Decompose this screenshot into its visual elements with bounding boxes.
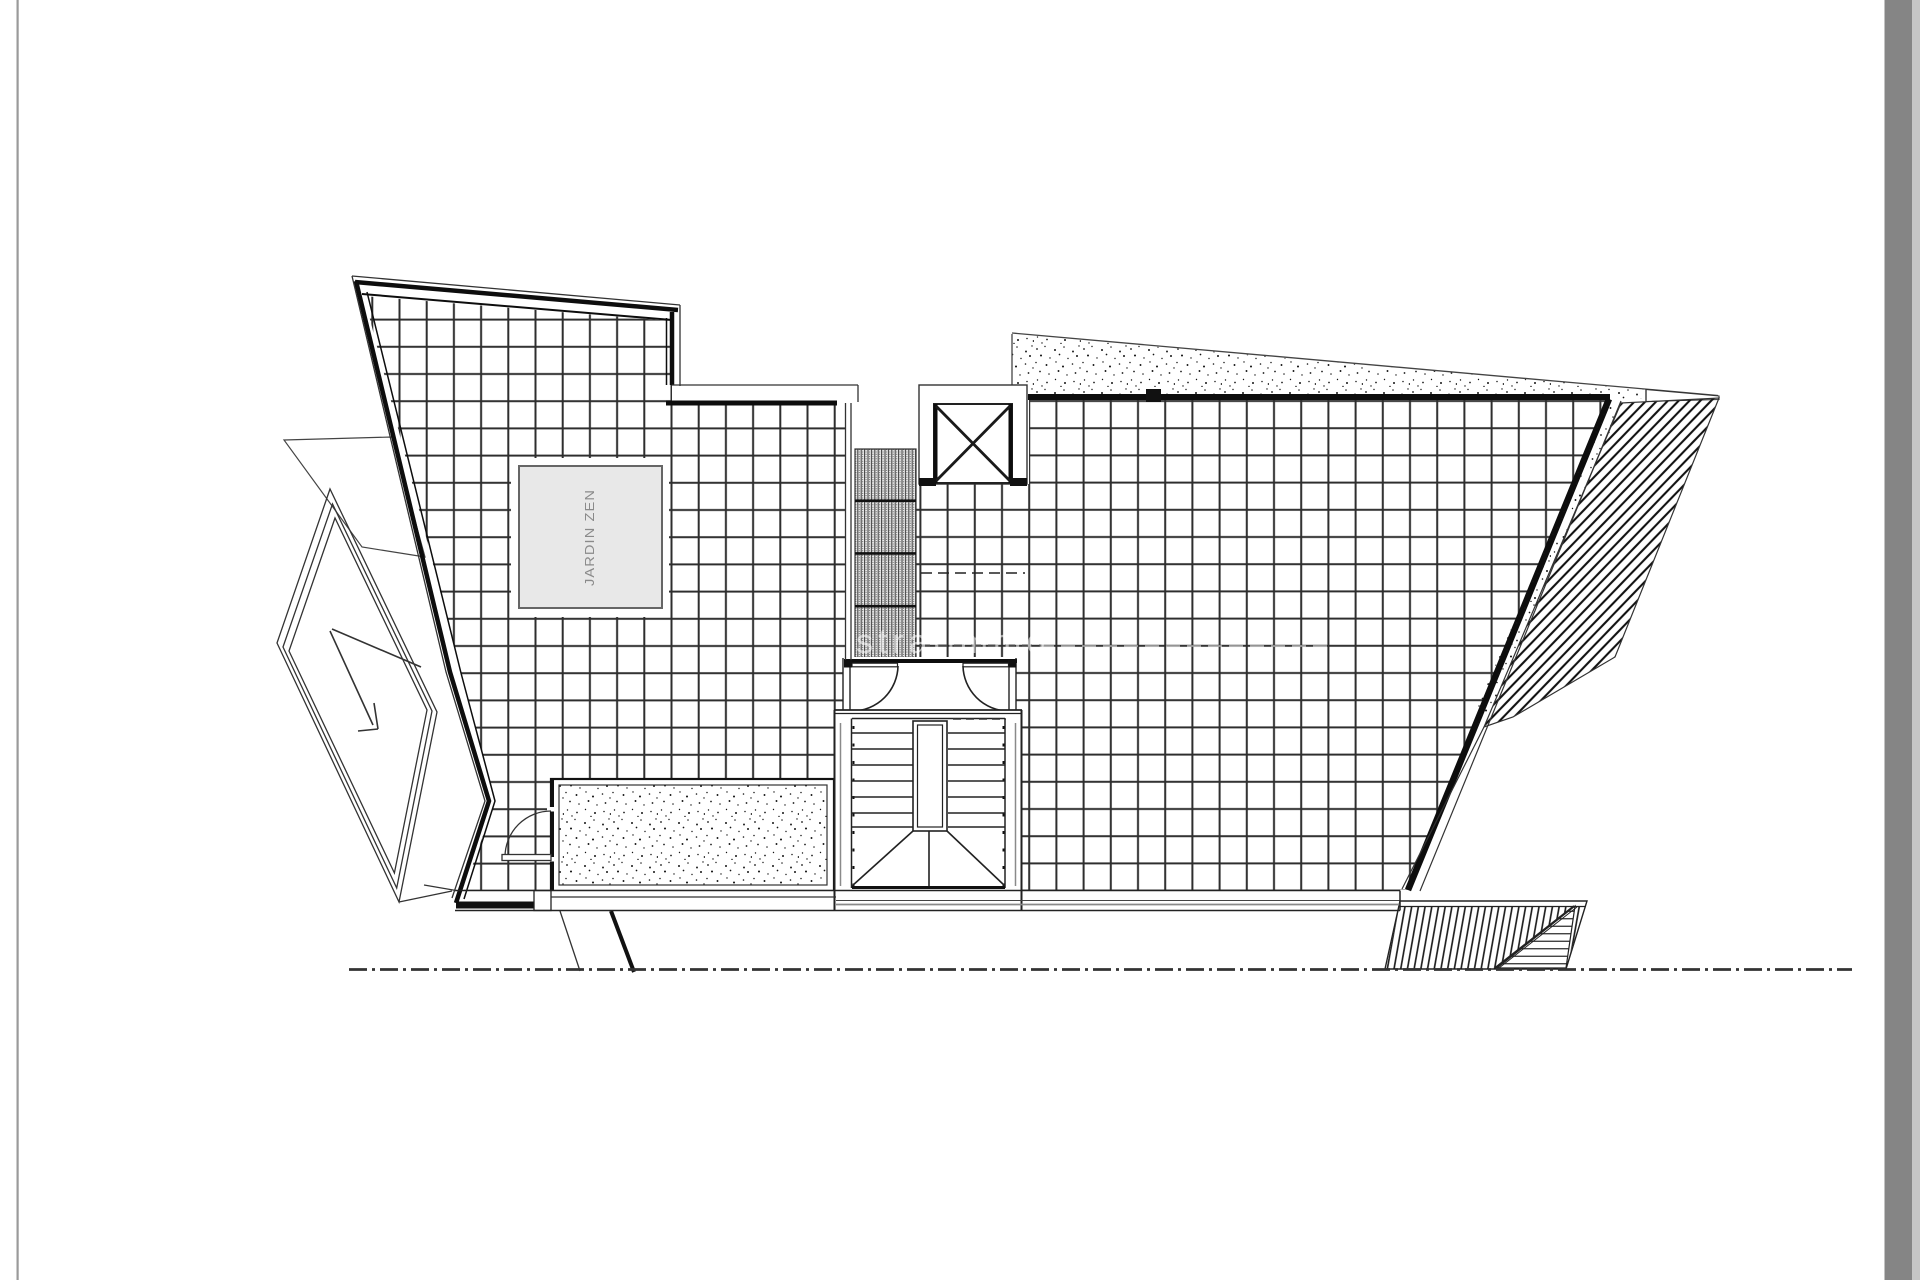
svg-text:stratimmo: stratimmo <box>856 623 1050 661</box>
svg-text:JARDIN ZEN: JARDIN ZEN <box>582 489 597 586</box>
